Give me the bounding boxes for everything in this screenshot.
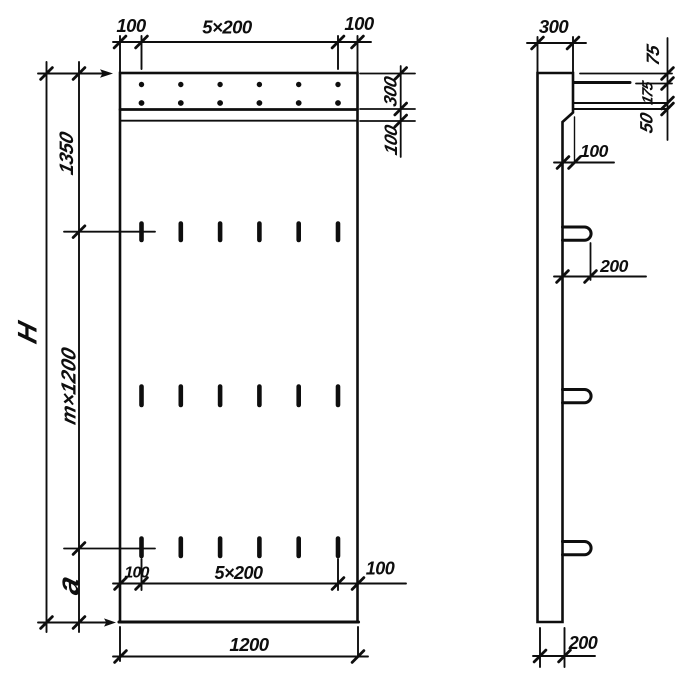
svg-text:50: 50: [636, 111, 657, 136]
svg-text:H: H: [12, 317, 42, 346]
svg-text:a: a: [52, 572, 85, 598]
svg-text:5×200: 5×200: [214, 563, 263, 583]
svg-text:100: 100: [366, 559, 395, 579]
svg-text:100: 100: [380, 123, 401, 157]
svg-text:100: 100: [344, 13, 375, 34]
svg-text:m×1200: m×1200: [58, 345, 81, 427]
svg-text:75: 75: [642, 42, 663, 67]
svg-text:100: 100: [116, 15, 147, 36]
svg-text:1200: 1200: [229, 634, 269, 655]
svg-text:5×200: 5×200: [202, 17, 253, 38]
svg-text:100: 100: [124, 565, 149, 582]
svg-text:300: 300: [380, 74, 401, 108]
svg-text:200: 200: [568, 633, 598, 653]
svg-text:200: 200: [599, 256, 628, 276]
svg-text:100: 100: [580, 141, 608, 161]
svg-text:1350: 1350: [56, 130, 78, 177]
svg-text:300: 300: [539, 16, 570, 37]
